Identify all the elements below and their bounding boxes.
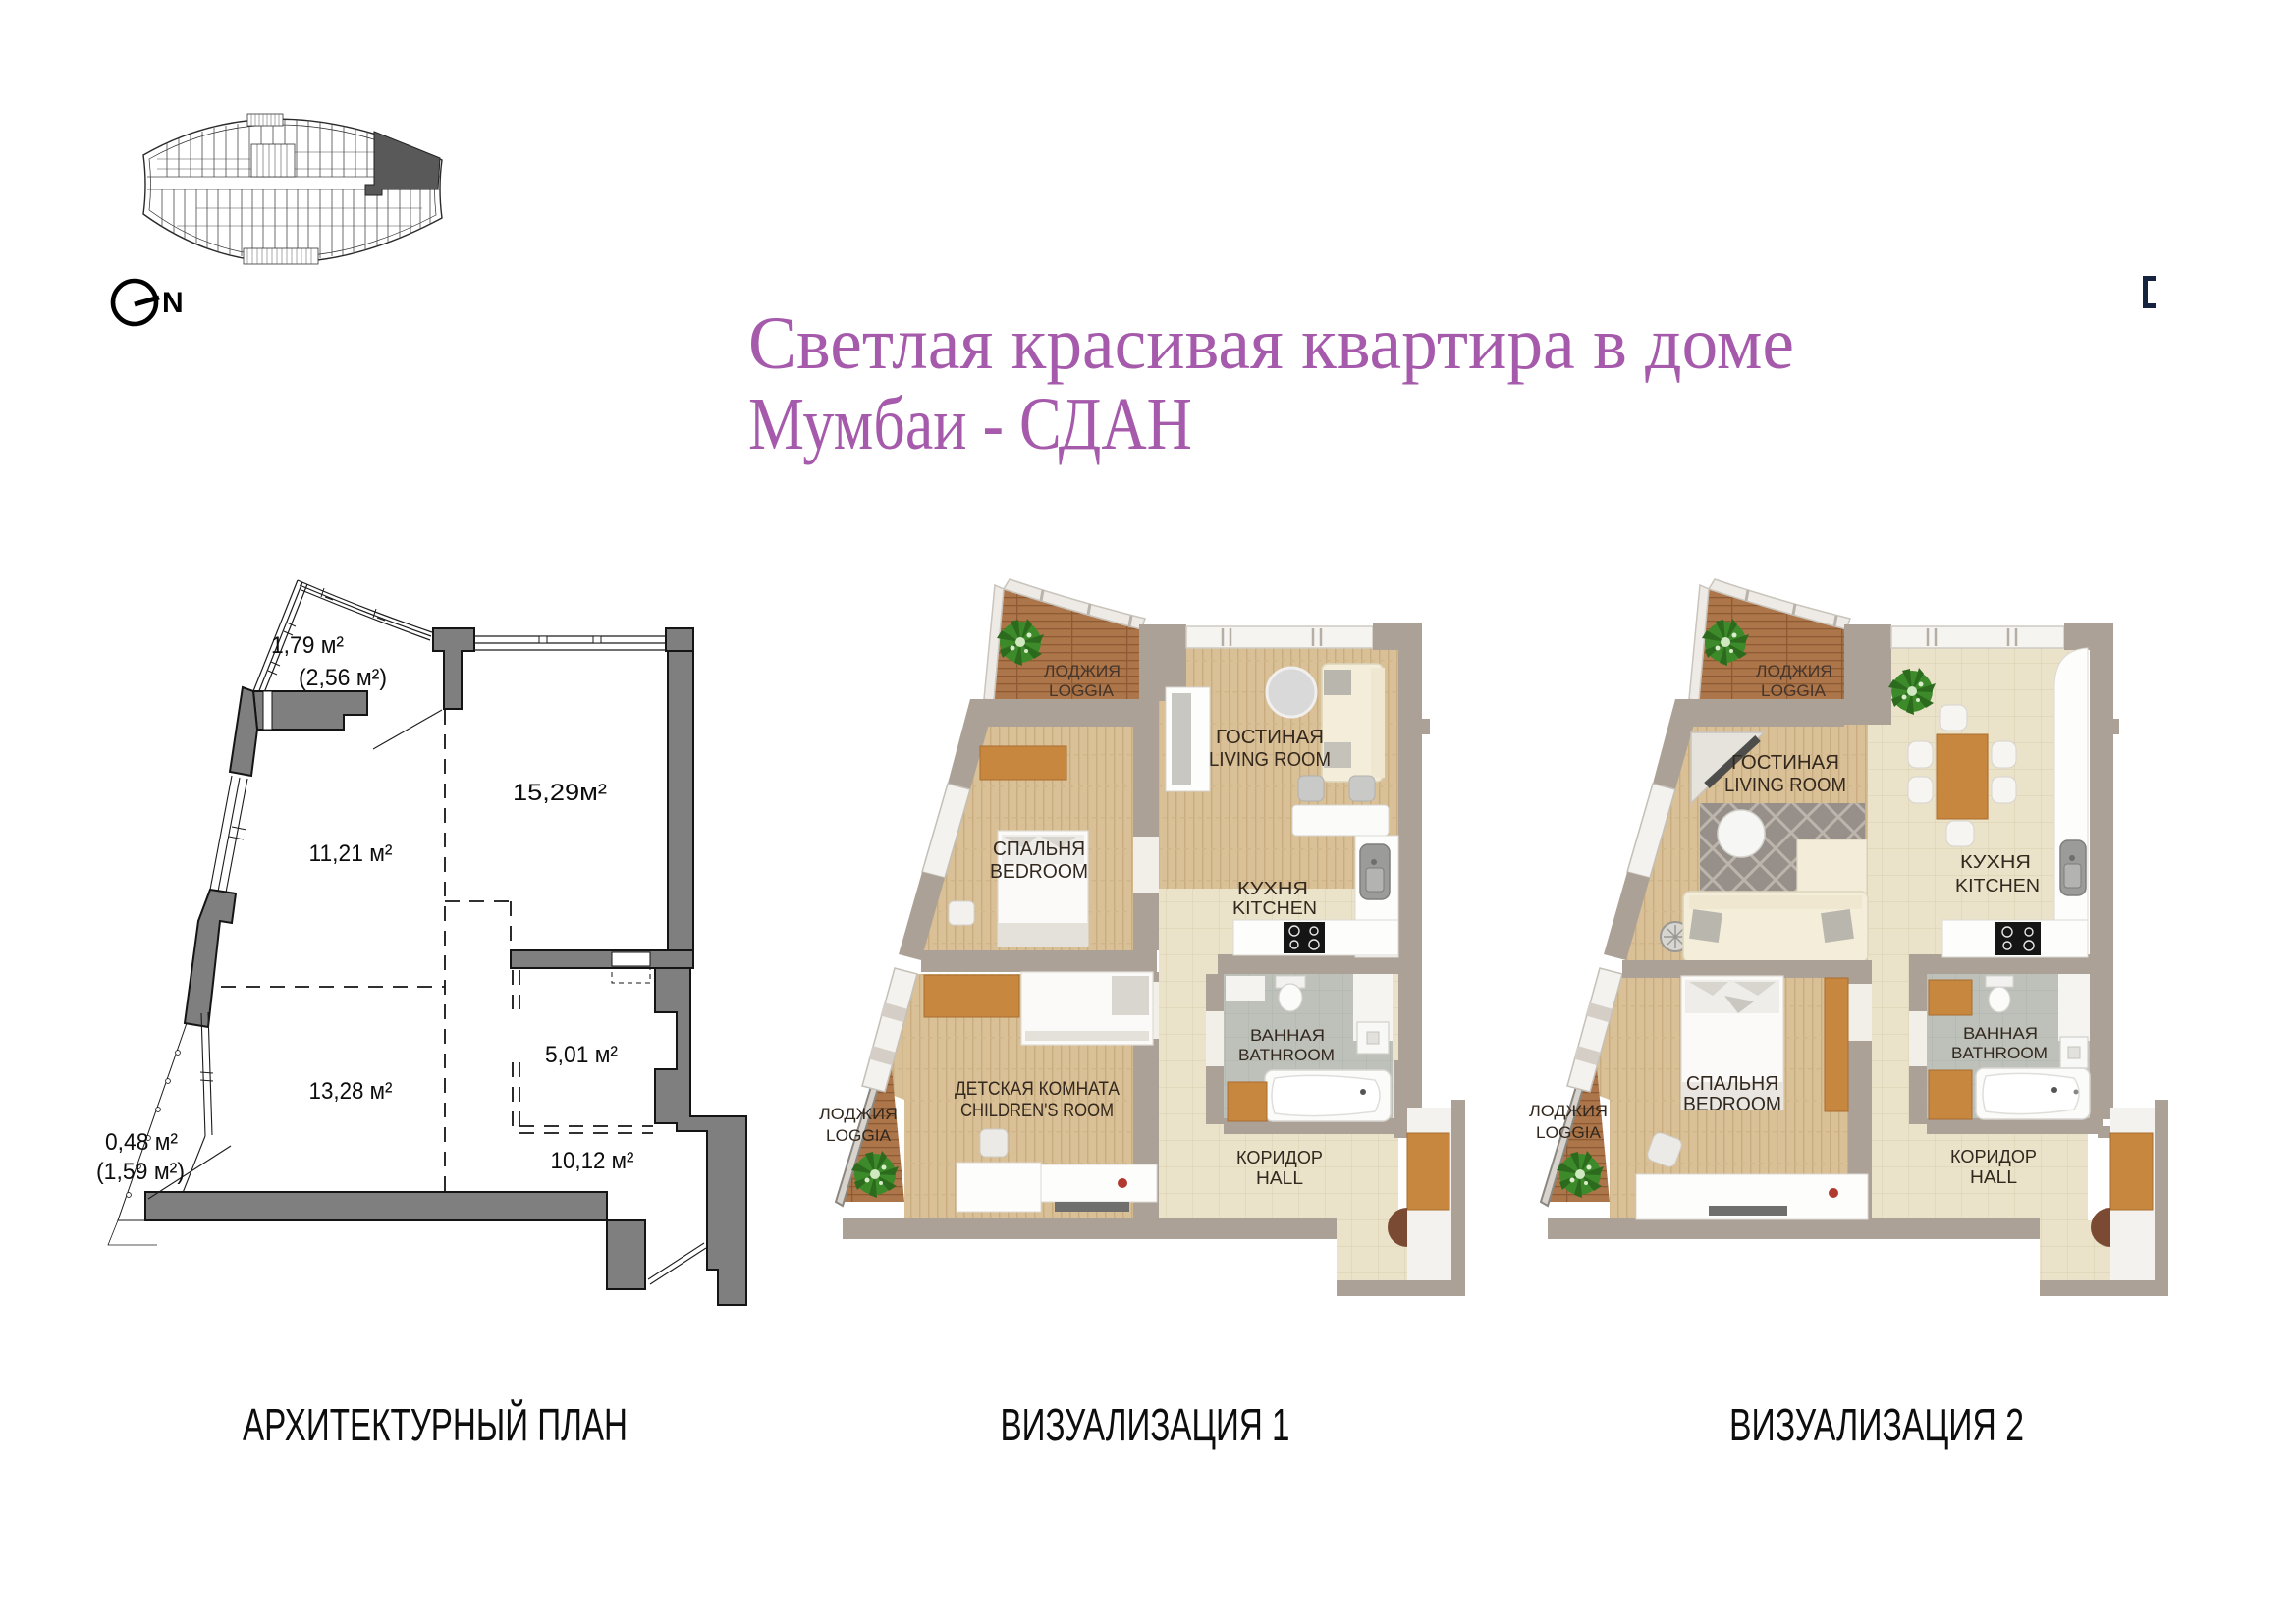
svg-text:ДЕТСКАЯ КОМНАТА: ДЕТСКАЯ КОМНАТА	[955, 1079, 1120, 1100]
svg-text:HALL: HALL	[1970, 1167, 2017, 1187]
svg-text:LOGGIA: LOGGIA	[1536, 1123, 1602, 1142]
svg-text:LOGGIA: LOGGIA	[826, 1126, 892, 1145]
svg-text:15,29м²: 15,29м²	[513, 780, 607, 806]
svg-text:LIVING ROOM: LIVING ROOM	[1209, 749, 1331, 771]
svg-text:N: N	[162, 287, 184, 319]
svg-text:(1,59 м²): (1,59 м²)	[96, 1159, 185, 1185]
svg-text:ЛОДЖИЯ: ЛОДЖИЯ	[819, 1105, 898, 1123]
svg-text:LOGGIA: LOGGIA	[1049, 681, 1115, 700]
svg-text:АРХИТЕКТУРНЫЙ ПЛАН: АРХИТЕКТУРНЫЙ ПЛАН	[243, 1399, 628, 1450]
svg-text:ЛОДЖИЯ: ЛОДЖИЯ	[1756, 662, 1832, 680]
svg-text:11,21 м²: 11,21 м²	[309, 840, 393, 867]
svg-text:5,01 м²: 5,01 м²	[545, 1042, 618, 1068]
svg-text:KITCHEN: KITCHEN	[1232, 898, 1317, 918]
svg-text:ВАННАЯ: ВАННАЯ	[1250, 1026, 1325, 1045]
svg-text:ВИЗУАЛИЗАЦИЯ 1: ВИЗУАЛИЗАЦИЯ 1	[1001, 1399, 1290, 1450]
svg-text:КОРИДОР: КОРИДОР	[1236, 1148, 1323, 1167]
svg-text:BATHROOM: BATHROOM	[1238, 1046, 1335, 1064]
svg-text:BATHROOM: BATHROOM	[1951, 1044, 2048, 1062]
svg-text:ВАННАЯ: ВАННАЯ	[1963, 1024, 2038, 1043]
svg-text:(2,56 м²): (2,56 м²)	[299, 665, 387, 691]
svg-text:СПАЛЬНЯ: СПАЛЬНЯ	[1686, 1073, 1778, 1095]
svg-text:ЛОДЖИЯ: ЛОДЖИЯ	[1044, 662, 1121, 680]
svg-text:HALL: HALL	[1256, 1168, 1303, 1188]
svg-text:КОРИДОР: КОРИДОР	[1950, 1147, 2037, 1166]
svg-text:13,28 м²: 13,28 м²	[309, 1078, 393, 1105]
svg-text:КУХНЯ: КУХНЯ	[1960, 852, 2031, 872]
svg-text:Светлая красивая квартира в до: Светлая красивая квартира в доме	[748, 302, 1794, 385]
svg-text:CHILDREN'S ROOM: CHILDREN'S ROOM	[960, 1101, 1114, 1121]
svg-text:KITCHEN: KITCHEN	[1955, 876, 2040, 895]
svg-text:10,12 м²: 10,12 м²	[551, 1148, 634, 1174]
svg-text:0,48 м²: 0,48 м²	[105, 1129, 178, 1156]
svg-text:BEDROOM: BEDROOM	[990, 861, 1088, 883]
svg-text:ЛОДЖИЯ: ЛОДЖИЯ	[1529, 1102, 1608, 1120]
svg-text:ГОСТИНАЯ: ГОСТИНАЯ	[1216, 727, 1324, 748]
svg-text:1,79 м²: 1,79 м²	[271, 632, 344, 659]
svg-text:СПАЛЬНЯ: СПАЛЬНЯ	[993, 839, 1085, 860]
svg-text:BEDROOM: BEDROOM	[1683, 1094, 1781, 1115]
svg-text:LIVING ROOM: LIVING ROOM	[1724, 775, 1846, 796]
svg-text:КУХНЯ: КУХНЯ	[1237, 879, 1308, 898]
svg-text:ГОСТИНАЯ: ГОСТИНАЯ	[1731, 752, 1839, 774]
svg-text:Мумбаи - СДАН: Мумбаи - СДАН	[748, 383, 1192, 465]
svg-text:LOGGIA: LOGGIA	[1761, 681, 1827, 700]
svg-text:ВИЗУАЛИЗАЦИЯ 2: ВИЗУАЛИЗАЦИЯ 2	[1729, 1399, 2024, 1450]
